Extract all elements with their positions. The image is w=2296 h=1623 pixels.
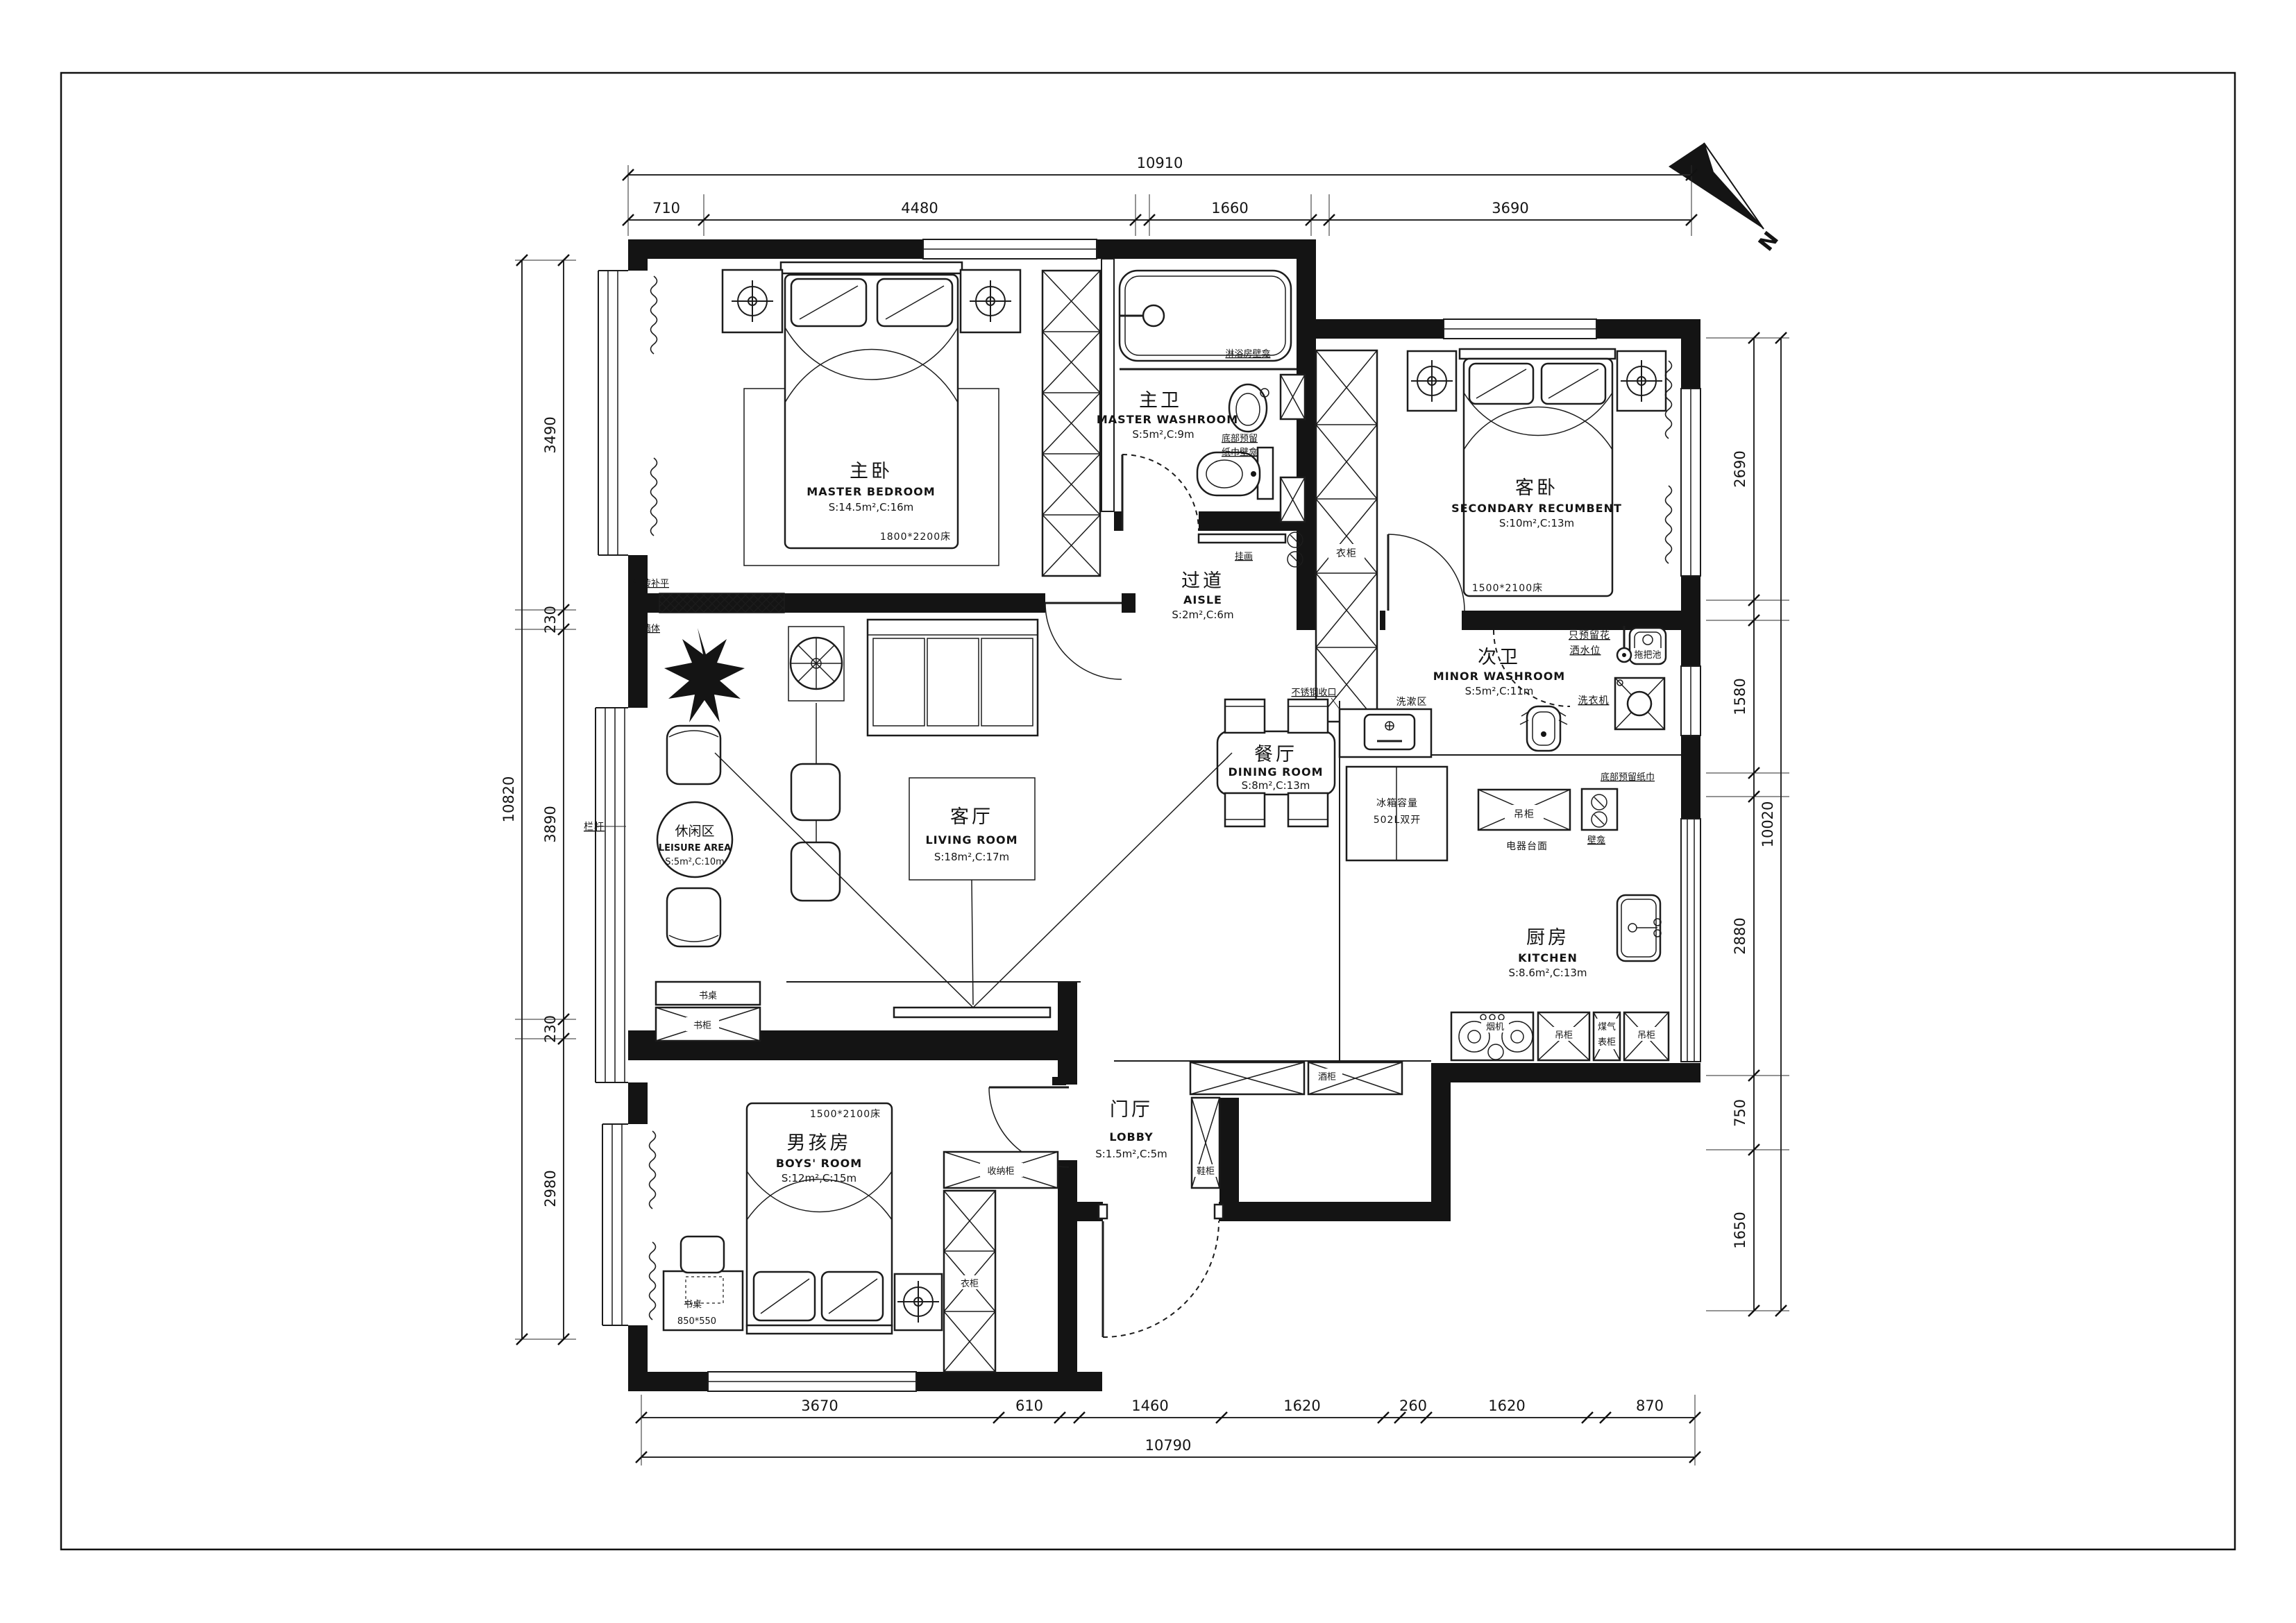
room-name-en: AISLE xyxy=(1183,593,1222,606)
window-boys-bottom xyxy=(708,1372,916,1391)
room-label-lobby: 门厅 LOBBY S:1.5m²,C:5m xyxy=(1095,1099,1167,1160)
window-secondary-right xyxy=(1681,389,1700,576)
mop-pool-label: 拖把池 xyxy=(1634,650,1661,661)
wine-cabinet: 酒柜 xyxy=(1308,1062,1402,1094)
boys-storage: 收纳柜 xyxy=(944,1152,1058,1188)
tv xyxy=(894,1008,1050,1017)
living-room: 红砖补平 墙体 休闲区 LEISURE AREA S:5 xyxy=(584,578,1232,1041)
room-label-master-washroom: 主卫 MASTER WASHROOM S:5m²,C:9m xyxy=(1097,390,1238,441)
dim-top-seg-0: 710 xyxy=(652,200,680,216)
room-area: S:5m²,C:11m xyxy=(1465,685,1534,697)
dim-left-seg-3: 230 xyxy=(542,1015,559,1043)
balcony-glazing-left xyxy=(596,708,628,1082)
room-name-en: LIVING ROOM xyxy=(925,833,1018,847)
room-area: S:1.5m²,C:5m xyxy=(1095,1148,1167,1160)
ceiling-fan xyxy=(788,627,844,701)
room-name-en: DINING ROOM xyxy=(1228,765,1323,779)
room-name-en: KITCHEN xyxy=(1518,951,1578,965)
curtain xyxy=(1666,486,1672,563)
gas-meter-label-2: 表柜 xyxy=(1598,1037,1616,1048)
tissue-niche2-label-2: 壁龛 xyxy=(1587,835,1605,846)
master-bedroom: 主卧 MASTER BEDROOM S:14.5m²,C:16m 1800*22… xyxy=(651,262,1101,576)
corridor-wardrobe: 衣柜 xyxy=(1316,350,1377,722)
room-area: S:12m²,C:15m xyxy=(782,1172,856,1184)
room-name-cn: 过道 xyxy=(1181,570,1224,592)
dim-right-seg-0: 2690 xyxy=(1732,450,1748,487)
room-label-living-room: 客厅 LIVING ROOM S:18m²,C:17m xyxy=(909,778,1035,880)
fridge-label-1: 冰箱容量 xyxy=(1376,797,1418,809)
dim-bottom-seg-3: 1620 xyxy=(1283,1397,1320,1414)
bed-headboard xyxy=(781,262,962,273)
dimension-bottom: 3670 610 1460 1620 260 1620 870 10790 xyxy=(636,1395,1700,1465)
dim-left-seg-1: 230 xyxy=(542,606,559,634)
dim-top-total: 10910 xyxy=(1137,155,1183,171)
room-name-en: SECONDARY RECUMBENT xyxy=(1451,502,1622,515)
washing-machine-label: 洗衣机 xyxy=(1578,695,1610,706)
boys-room: 书桌 850*550 衣柜 收纳柜 男孩房 BOYS' ROOM S:12m²,… xyxy=(650,1103,1058,1372)
railing-label: 栏杆 xyxy=(584,822,605,833)
side-table xyxy=(791,842,840,901)
kitchen: 吊柜 底部预留纸巾 壁龛 电器台面 厨房 KITCHEN S:8.6m²,C:1… xyxy=(1451,772,1669,1060)
tub-faucet-icon xyxy=(1143,305,1164,326)
room-area: S:10m²,C:13m xyxy=(1499,517,1574,529)
dining-room: 餐厅 DINING ROOM S:8m²,C:13m xyxy=(1217,699,1335,826)
dining-chair xyxy=(1288,793,1328,826)
room-name-cn: 客厅 xyxy=(950,806,993,828)
dimension-left: 3490 230 3890 230 2980 10820 xyxy=(500,255,576,1345)
aisle: 挂画 过道 AISLE S:2m²,C:6m xyxy=(1172,534,1285,621)
tissue-niche2-label-1: 底部预留纸巾 xyxy=(1601,772,1655,783)
floor-plan-sheet: 主卧 MASTER BEDROOM S:14.5m²,C:16m 1800*22… xyxy=(0,0,2296,1623)
dim-left-seg-2: 3890 xyxy=(542,806,559,842)
shower-reserve-label-2: 洒水位 xyxy=(1570,645,1601,656)
dim-bottom-seg-0: 3670 xyxy=(801,1397,838,1414)
room-label-minor-washroom: 次卫 MINOR WASHROOM S:5m²,C:11m xyxy=(1433,647,1565,697)
room-name-cn: 休闲区 xyxy=(675,824,714,839)
range-hood-label: 烟机 xyxy=(1486,1022,1504,1033)
hanging-picture-label: 挂画 xyxy=(1235,552,1253,562)
tissue-niche-label-1: 底部预留 xyxy=(1222,433,1258,444)
dim-bottom-total: 10790 xyxy=(1145,1437,1192,1454)
room-name-en: MINOR WASHROOM xyxy=(1433,670,1565,683)
bed-headboard xyxy=(747,1325,892,1334)
hanging-cabinet-label: 吊柜 xyxy=(1555,1030,1573,1041)
dim-bottom-seg-4: 260 xyxy=(1399,1397,1427,1414)
plant xyxy=(664,628,745,722)
master-wardrobe xyxy=(1043,271,1100,576)
hanging-cabinet-bottom-2: 吊柜 xyxy=(1624,1012,1669,1060)
dim-left-total: 10820 xyxy=(500,776,517,823)
hanging-cabinet-bottom-1: 吊柜 xyxy=(1538,1012,1589,1060)
wardrobe-label: 衣柜 xyxy=(1336,548,1357,559)
dim-left-seg-0: 3490 xyxy=(542,416,559,453)
dim-right-seg-1: 1580 xyxy=(1732,678,1748,715)
master-washroom-door xyxy=(1122,454,1199,531)
room-name-cn: 次卫 xyxy=(1478,647,1521,668)
stove-counter: 烟机 xyxy=(1451,1012,1533,1060)
room-area: S:14.5m²,C:16m xyxy=(829,501,914,513)
north-label: N xyxy=(1754,227,1784,255)
room-name-en: LOBBY xyxy=(1109,1130,1153,1144)
boys-desk: 书桌 850*550 xyxy=(664,1237,743,1330)
dimension-right: 2690 1580 2880 750 1650 10020 xyxy=(1706,332,1789,1316)
room-area: S:8m²,C:13m xyxy=(1242,779,1310,792)
room-name-en: MASTER WASHROOM xyxy=(1097,413,1238,426)
brick-label-1: 红砖补平 xyxy=(633,578,669,589)
dimension-top: 10910 710 4480 1660 3690 xyxy=(623,155,1697,236)
entry-door xyxy=(1099,1205,1223,1337)
desk-label: 书桌 xyxy=(684,1300,702,1310)
boys-wardrobe: 衣柜 xyxy=(944,1191,995,1372)
bookcase-label: 书柜 xyxy=(693,1021,711,1031)
dim-right-seg-4: 1650 xyxy=(1732,1212,1748,1248)
wine-cabinet-label: 酒柜 xyxy=(1318,1072,1336,1082)
side-table xyxy=(791,764,840,820)
appliance-counter-label: 电器台面 xyxy=(1506,841,1548,852)
brick-label-2: 墙体 xyxy=(642,624,660,634)
shower-reserve-label-1: 只预留花 xyxy=(1569,630,1610,641)
sofa xyxy=(868,620,1038,736)
room-name-cn: 餐厅 xyxy=(1254,744,1297,765)
tissue-niche-label-2: 纸巾壁龛 xyxy=(1222,448,1258,458)
tissue-niche-kitchen: 底部预留纸巾 壁龛 xyxy=(1582,772,1655,846)
room-name-cn: 男孩房 xyxy=(787,1132,852,1154)
dining-chair xyxy=(1288,699,1328,733)
storage-cabinet-label: 收纳柜 xyxy=(987,1166,1014,1177)
window-kitchen-right xyxy=(1681,819,1700,1062)
leisure-desk: 书桌 书柜 xyxy=(656,982,760,1041)
hanging-cabinet-label: 吊柜 xyxy=(1637,1030,1655,1041)
bed-headboard xyxy=(1460,349,1615,359)
dim-top-seg-1: 4480 xyxy=(901,200,938,216)
room-name-cn: 门厅 xyxy=(1110,1099,1153,1121)
bed-size-label: 1500*2100床 xyxy=(810,1109,881,1120)
wash-sink xyxy=(1365,715,1415,749)
room-name-cn: 客卧 xyxy=(1515,477,1558,499)
bay-window-master-left xyxy=(598,271,628,555)
room-name-cn: 主卫 xyxy=(1139,390,1182,411)
bed-size-label: 1500*2100床 xyxy=(1472,583,1543,594)
wash-area-label: 洗漱区 xyxy=(1396,697,1428,708)
room-name-en: MASTER BEDROOM xyxy=(807,485,935,498)
dim-bottom-seg-6: 870 xyxy=(1636,1397,1664,1414)
dim-top-seg-3: 3690 xyxy=(1492,200,1528,216)
hanging-cabinet-top: 吊柜 xyxy=(1478,790,1570,830)
curtain xyxy=(650,1131,656,1209)
hanging-cabinet-label: 吊柜 xyxy=(1514,809,1535,820)
dim-top-seg-2: 1660 xyxy=(1211,200,1248,216)
curtain xyxy=(651,458,657,536)
dim-right-total: 10020 xyxy=(1759,801,1776,848)
window-master-top xyxy=(923,239,1097,259)
squat-toilet xyxy=(1520,706,1567,751)
shower-niche-label: 淋浴房壁龛 xyxy=(1225,348,1270,359)
room-name-en: BOYS' ROOM xyxy=(776,1157,862,1170)
kitchen-sink xyxy=(1617,895,1661,961)
secondary-bedroom-door xyxy=(1388,534,1464,611)
room-area: S:18m²,C:17m xyxy=(934,851,1009,863)
shoe-cabinet: 鞋柜 xyxy=(1192,1098,1219,1188)
dim-right-seg-2: 2880 xyxy=(1732,917,1748,954)
washing-machine xyxy=(1615,678,1664,729)
room-area: S:2m²,C:6m xyxy=(1172,609,1233,621)
room-label-dining-room: 餐厅 DINING ROOM S:8m²,C:13m xyxy=(1228,744,1323,792)
desk-chair xyxy=(681,1237,724,1273)
dim-left-seg-4: 2980 xyxy=(542,1170,559,1207)
curtain xyxy=(651,276,657,354)
window-boys-left xyxy=(602,1124,628,1325)
brick-fill-wall xyxy=(659,593,784,613)
fridge: 冰箱容量 502L双开 xyxy=(1347,767,1447,860)
room-area: S:8.6m²,C:13m xyxy=(1508,967,1587,979)
dim-bottom-seg-1: 610 xyxy=(1015,1397,1043,1414)
room-name-cn: 主卧 xyxy=(850,461,893,482)
north-arrow: N xyxy=(1669,143,1784,256)
room-label-kitchen: 厨房 KITCHEN S:8.6m²,C:13m xyxy=(1508,927,1587,979)
hanging-picture xyxy=(1199,534,1285,543)
dining-chair xyxy=(1225,793,1265,826)
dining-chair xyxy=(1225,699,1265,733)
room-label-aisle: 过道 AISLE S:2m²,C:6m xyxy=(1172,570,1233,621)
shower-reserve: 只预留花 洒水位 xyxy=(1569,626,1631,662)
fridge-label-2: 502L双开 xyxy=(1374,815,1421,826)
window-secondary-top xyxy=(1444,319,1596,339)
room-area: S:5m²,C:10m xyxy=(665,857,725,867)
room-name-en: LEISURE AREA xyxy=(659,843,731,853)
gas-meter-cabinet: 煤气 表柜 xyxy=(1594,1012,1620,1060)
desk-size-label: 850*550 xyxy=(677,1316,716,1327)
dim-right-seg-3: 750 xyxy=(1732,1099,1748,1127)
curtain xyxy=(650,1242,656,1320)
desk-label: 书桌 xyxy=(699,991,717,1001)
floor-plan-drawing: 主卧 MASTER BEDROOM S:14.5m²,C:16m 1800*22… xyxy=(0,0,2296,1623)
wardrobe-label: 衣柜 xyxy=(961,1278,979,1289)
shoe-cabinet-label: 鞋柜 xyxy=(1197,1166,1215,1177)
steel-trim-label: 不锈钢收口 xyxy=(1291,688,1336,698)
gas-meter-label-1: 煤气 xyxy=(1598,1021,1616,1033)
mop-pool: 拖把池 xyxy=(1630,628,1666,664)
bed-size-label: 1800*2200床 xyxy=(880,532,951,543)
dim-bottom-seg-2: 1460 xyxy=(1131,1397,1168,1414)
lobby-cabinet xyxy=(1190,1062,1304,1094)
room-name-cn: 厨房 xyxy=(1526,927,1569,949)
dim-bottom-seg-5: 1620 xyxy=(1488,1397,1525,1414)
room-area: S:5m²,C:9m xyxy=(1132,428,1194,441)
window-washroom-right xyxy=(1681,666,1700,736)
master-suite-door xyxy=(1045,603,1122,679)
